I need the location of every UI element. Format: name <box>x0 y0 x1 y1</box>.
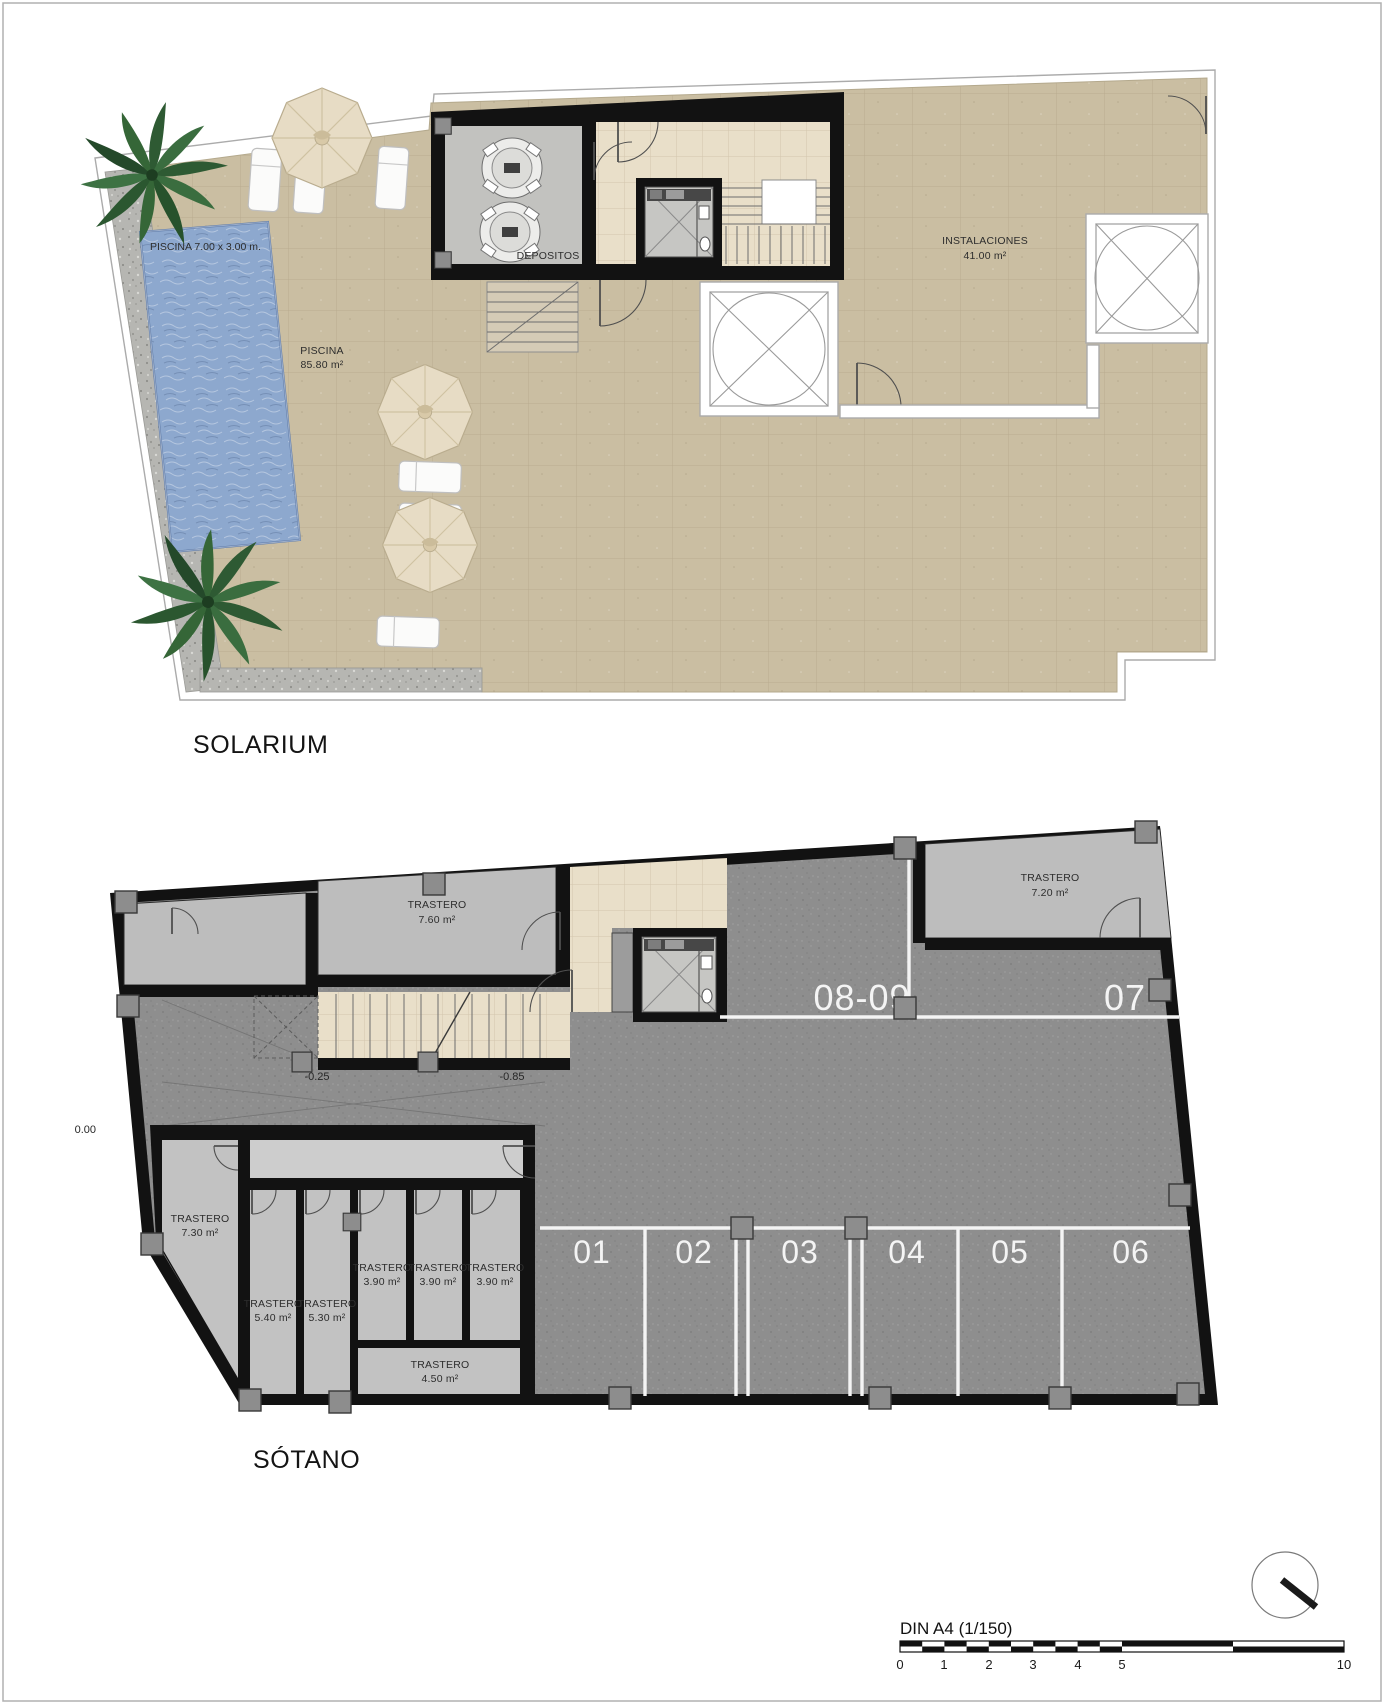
sun-lounger <box>376 616 439 648</box>
parasol-icon <box>383 498 478 593</box>
scale-tick: 4 <box>1074 1657 1081 1672</box>
duct <box>612 933 633 1012</box>
parking-spot-07: 07 <box>1104 977 1146 1018</box>
scale-tick: 3 <box>1029 1657 1036 1672</box>
parking-spot-01: 01 <box>573 1234 611 1270</box>
parking-spot-02: 02 <box>675 1234 713 1270</box>
parasol-icon <box>378 365 473 460</box>
roof-lobby <box>596 122 830 178</box>
trastero-area: 7.30 m² <box>182 1227 219 1239</box>
elevator-car <box>642 937 716 1012</box>
wall <box>306 893 318 997</box>
trastero-label: TRASTERO <box>353 1262 412 1274</box>
scale-tick: 2 <box>985 1657 992 1672</box>
pool-name-label: PISCINA <box>300 345 343 357</box>
trastero-area: 5.40 m² <box>255 1312 292 1324</box>
plan-canvas: PISCINA 7.00 x 3.00 m. PISCINA 85.80 m² <box>0 0 1384 1704</box>
north-arrow-icon <box>1252 1552 1318 1618</box>
skylight <box>1086 214 1208 343</box>
terrace-stair <box>487 282 578 352</box>
storage-corridor <box>250 1140 523 1178</box>
solarium-plan: PISCINA 7.00 x 3.00 m. PISCINA 85.80 m² <box>81 70 1215 759</box>
parking-spot-05: 05 <box>991 1234 1029 1270</box>
instalaciones-wall <box>840 405 1099 418</box>
trastero-label: TRASTERO <box>171 1213 230 1225</box>
roof-stairs <box>722 178 830 266</box>
trastero-area: 7.60 m² <box>419 914 456 926</box>
roof-corridor <box>596 178 636 264</box>
parking-spot-03: 03 <box>781 1234 819 1270</box>
basement-lobby <box>570 858 727 928</box>
wall <box>318 1058 570 1070</box>
column <box>435 252 452 269</box>
scale-tick: 1 <box>940 1657 947 1672</box>
sun-lounger <box>375 146 409 210</box>
wall <box>318 975 570 987</box>
scale-tick: 5 <box>1118 1657 1125 1672</box>
level-low: -0.85 <box>499 1071 524 1083</box>
skylight <box>700 282 838 416</box>
basement-corridor <box>570 928 612 1012</box>
trastero-label: TRASTERO <box>1021 872 1080 884</box>
column <box>435 118 452 135</box>
depositos-label: DEPOSITOS <box>517 250 580 262</box>
trastero-area: 7.20 m² <box>1032 887 1069 899</box>
sotano-title: SÓTANO <box>253 1445 360 1474</box>
wall <box>556 867 570 987</box>
level-zero: 0.00 <box>75 1124 96 1136</box>
scale-tick: 0 <box>896 1657 903 1672</box>
instalaciones-label: INSTALACIONES <box>942 235 1028 247</box>
trastero-area: 5.30 m² <box>309 1312 346 1324</box>
parasol-icon <box>272 88 372 188</box>
scale-tick: 10 <box>1337 1657 1351 1672</box>
trastero-area: 4.50 m² <box>422 1373 459 1385</box>
wall <box>124 985 318 997</box>
trastero-area: 3.90 m² <box>364 1276 401 1288</box>
trastero-450-room <box>358 1348 520 1394</box>
trastero-730-room <box>162 1140 238 1378</box>
pool-dim-label: PISCINA 7.00 x 3.00 m. <box>150 241 261 253</box>
wall <box>925 938 1172 950</box>
wall <box>913 845 925 943</box>
trastero-label: TRASTERO <box>466 1262 525 1274</box>
floorplan-sheet: PISCINA 7.00 x 3.00 m. PISCINA 85.80 m² <box>0 0 1384 1704</box>
sun-lounger <box>248 148 282 212</box>
sotano-plan: 0.00 5% -0.25 -0.85 TRASTERO 7.60 m² <box>75 821 1218 1474</box>
parking-spot-06: 06 <box>1112 1234 1150 1270</box>
trastero-label: TRASTERO <box>298 1298 357 1310</box>
instalaciones-area: 41.00 m² <box>963 250 1006 262</box>
storage-room <box>124 893 306 985</box>
pool-area-label: 85.80 m² <box>300 359 343 371</box>
trastero-label: TRASTERO <box>408 899 467 911</box>
trastero-540-room <box>250 1190 296 1394</box>
elevator-car <box>645 187 713 257</box>
scale-label: DIN A4 (1/150) <box>900 1619 1012 1638</box>
depositos-room: DEPOSITOS <box>445 126 582 264</box>
basement-stairs <box>318 992 570 1062</box>
trastero-area: 3.90 m² <box>420 1276 457 1288</box>
sun-lounger <box>398 461 461 493</box>
trastero-label: TRASTERO <box>409 1262 468 1274</box>
parking-spot-04: 04 <box>888 1234 926 1270</box>
gravel-strip-bottom <box>200 668 482 692</box>
instalaciones-wall <box>1087 345 1099 408</box>
solarium-title: SOLARIUM <box>193 731 328 759</box>
trastero-label: TRASTERO <box>244 1298 303 1310</box>
scale-bar: DIN A4 (1/150) 0 1 2 3 4 5 10 <box>896 1619 1351 1672</box>
trastero-label: TRASTERO <box>411 1359 470 1371</box>
level-mid: -0.25 <box>304 1071 329 1083</box>
trastero-area: 3.90 m² <box>477 1276 514 1288</box>
water-tank-icon <box>482 138 542 198</box>
